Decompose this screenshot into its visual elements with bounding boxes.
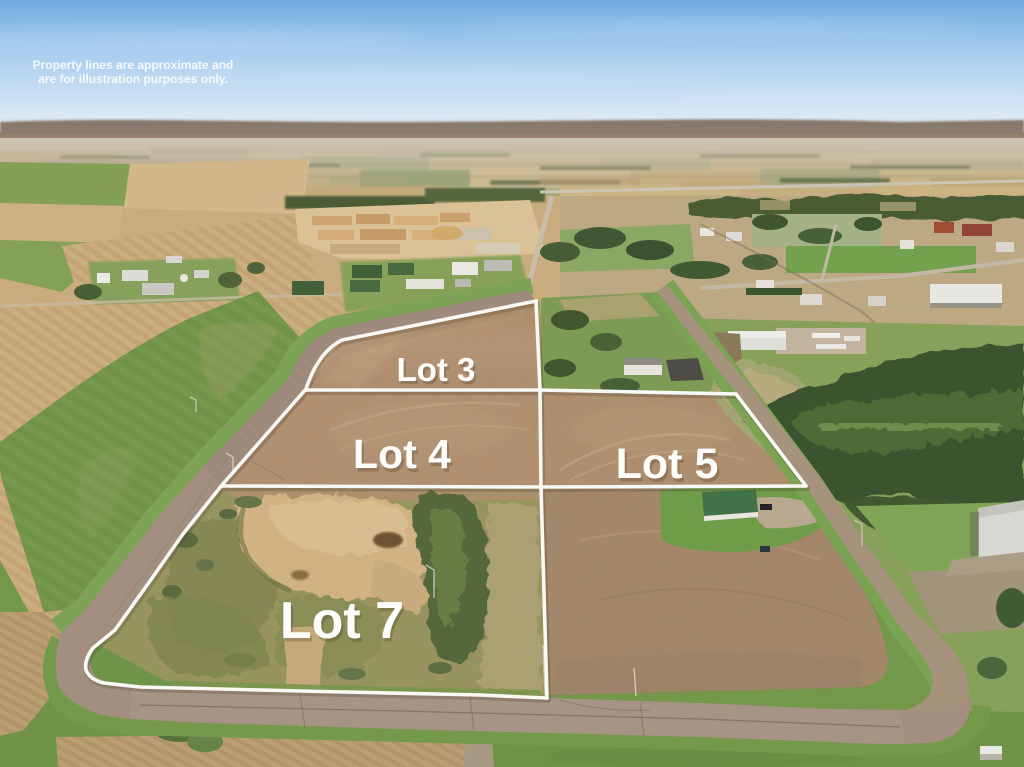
svg-text:Lot 7: Lot 7 [280, 592, 404, 650]
svg-text:are for illustration purposes: are for illustration purposes only. [38, 72, 228, 86]
svg-text:Lot 4: Lot 4 [353, 431, 451, 477]
svg-text:Lot 3: Lot 3 [397, 351, 476, 388]
svg-text:Property lines are approximate: Property lines are approximate and [33, 58, 234, 72]
svg-text:Lot 5: Lot 5 [616, 440, 719, 488]
